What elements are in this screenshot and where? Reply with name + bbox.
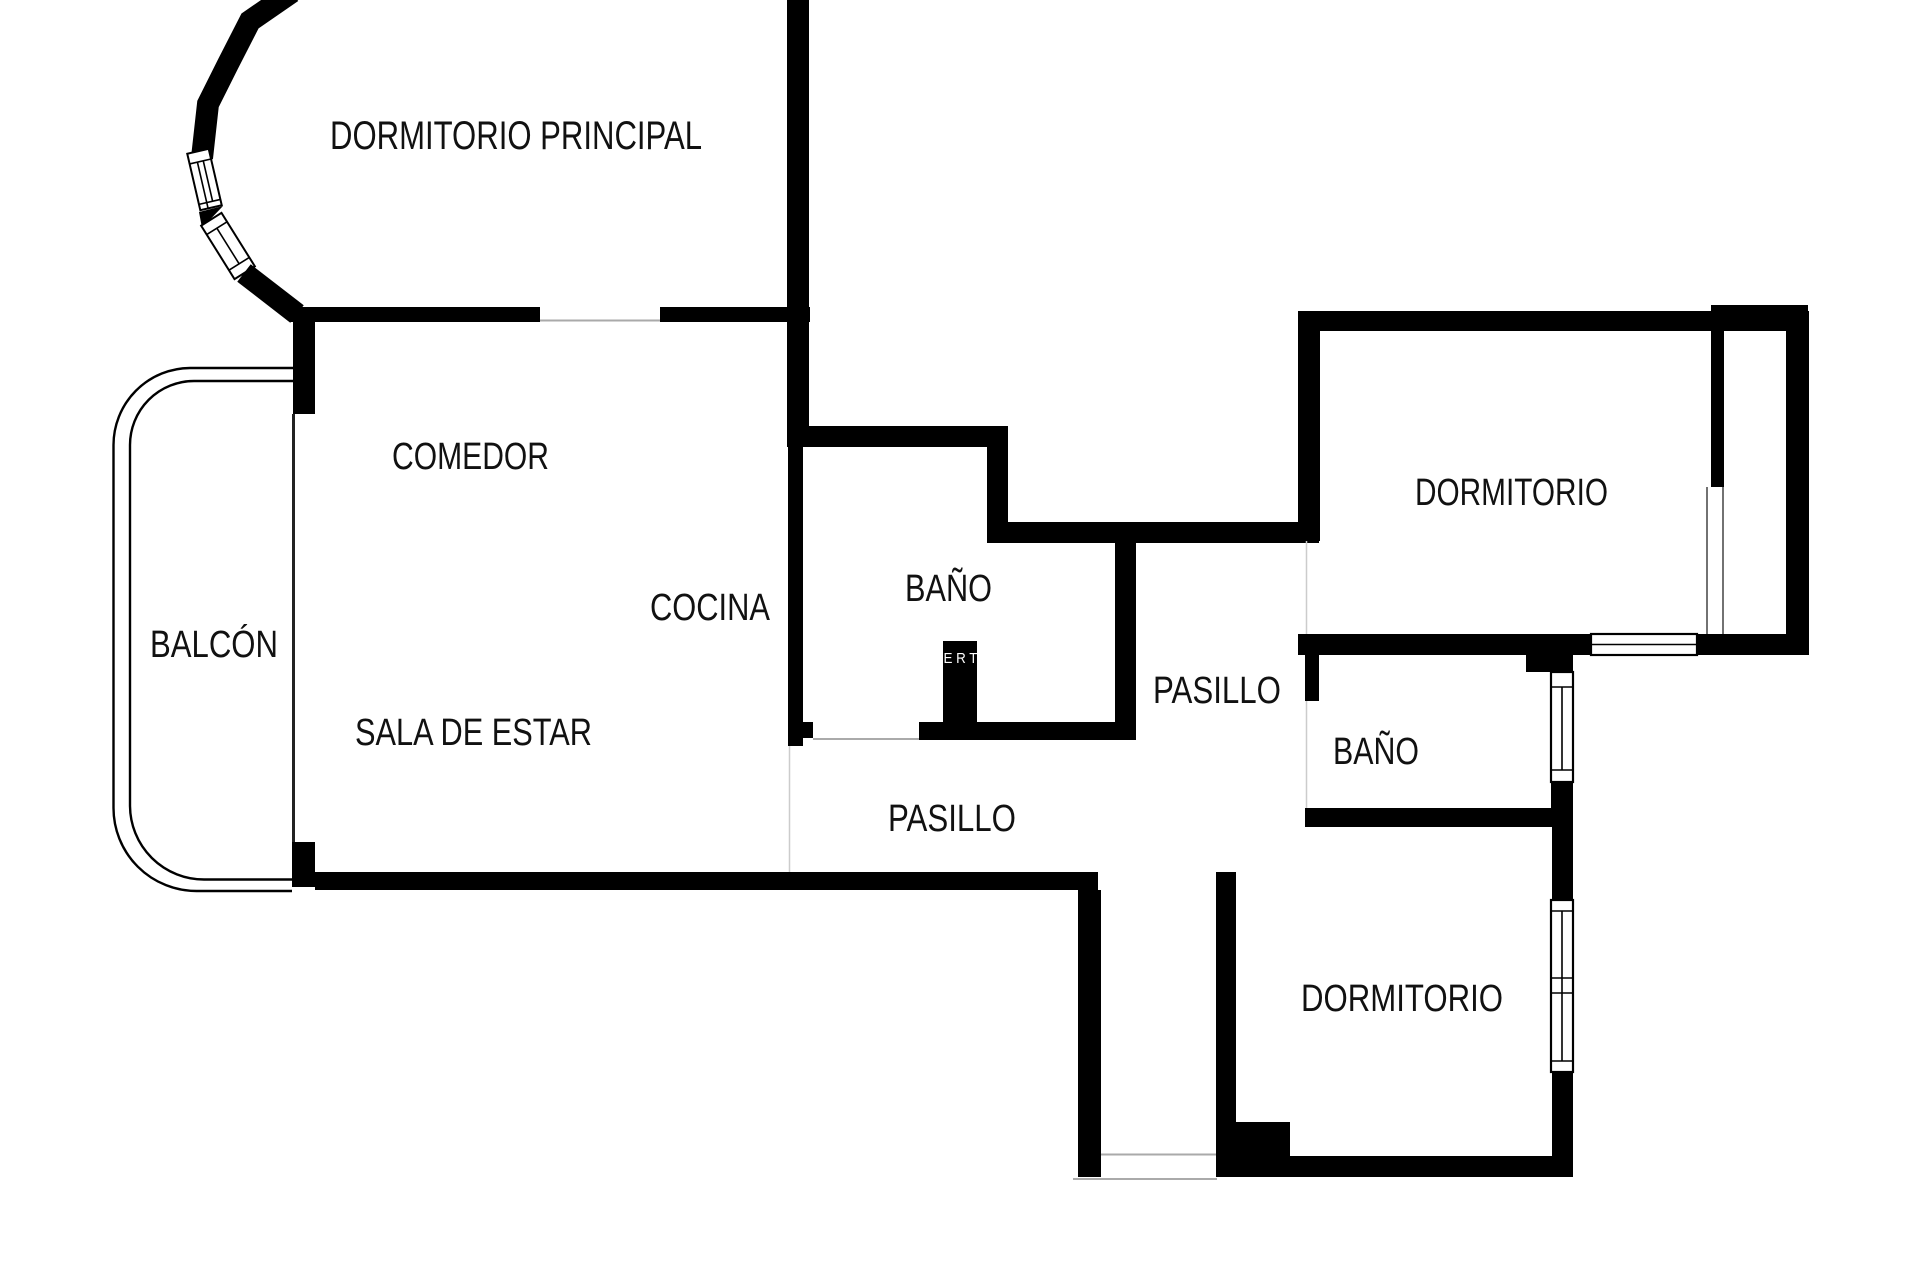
svg-text:COCINA: COCINA	[650, 587, 771, 629]
svg-text:BAÑO: BAÑO	[905, 567, 992, 610]
svg-text:DORMITORIO: DORMITORIO	[1301, 978, 1503, 1020]
svg-text:BALCÓN: BALCÓN	[150, 623, 278, 666]
svg-text:COMEDOR: COMEDOR	[392, 436, 549, 478]
svg-text:PASILLO: PASILLO	[1153, 670, 1281, 712]
svg-text:DORMITORIO PRINCIPAL: DORMITORIO PRINCIPAL	[330, 114, 702, 158]
svg-text:SALA DE ESTAR: SALA DE ESTAR	[355, 712, 592, 754]
svg-text:E R T: E R T	[944, 650, 978, 667]
svg-text:PASILLO: PASILLO	[888, 798, 1016, 840]
svg-text:DORMITORIO: DORMITORIO	[1415, 472, 1608, 514]
svg-text:BAÑO: BAÑO	[1333, 730, 1419, 773]
